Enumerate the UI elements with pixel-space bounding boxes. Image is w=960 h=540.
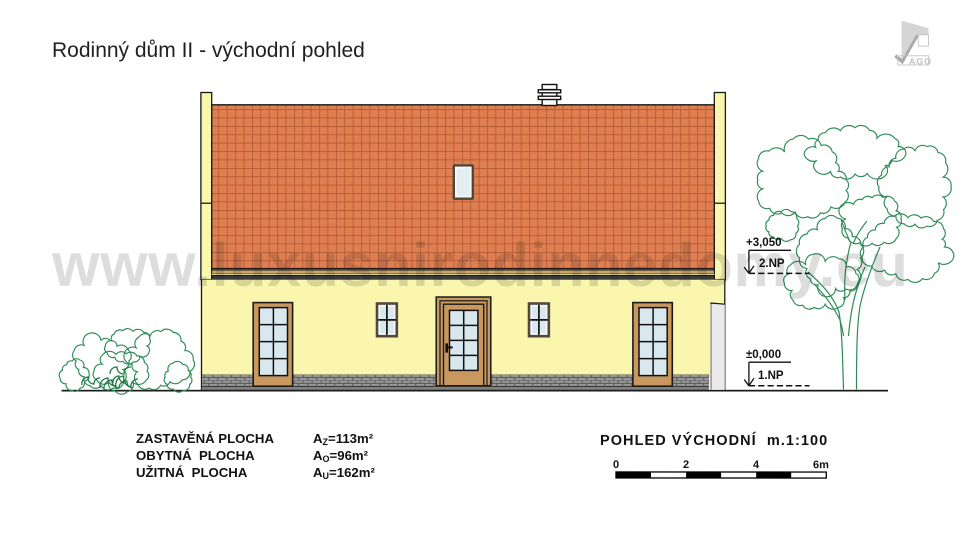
svg-text:4: 4: [753, 459, 760, 471]
svg-text:0: 0: [613, 459, 619, 471]
svg-text:6m: 6m: [813, 459, 829, 471]
svg-text:2: 2: [683, 459, 689, 471]
